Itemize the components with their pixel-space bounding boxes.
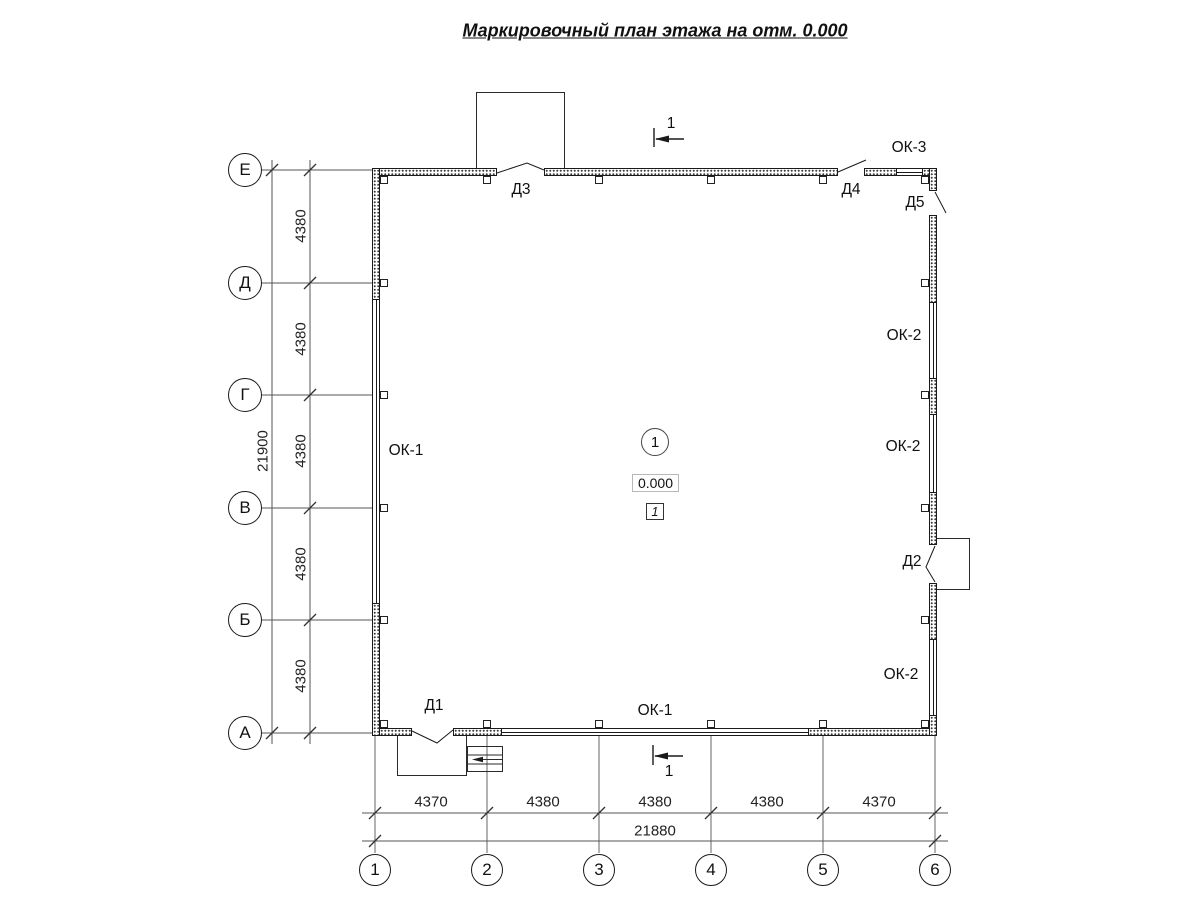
- porch-steps: [467, 746, 503, 772]
- floor-finish-mark: 1: [646, 503, 664, 520]
- porch-right: [937, 538, 970, 590]
- pilaster: [921, 279, 929, 287]
- pilaster: [707, 176, 715, 184]
- door-label-d4: Д4: [841, 181, 860, 199]
- pilaster: [380, 176, 388, 184]
- door-leaf-d5: [935, 192, 946, 213]
- wall-right-4: [929, 492, 937, 545]
- section-mark-bottom: [653, 745, 683, 765]
- pilaster: [483, 720, 491, 728]
- window-ok2-bottom-segment: [929, 640, 937, 715]
- pilaster: [921, 720, 929, 728]
- dim-col-0: 4370: [414, 794, 447, 811]
- dim-col-total: 21880: [634, 823, 676, 840]
- wall-bottom-3: [808, 728, 937, 736]
- axis-bubble: А: [228, 716, 262, 750]
- dim-row-4: 4380: [293, 659, 310, 692]
- door-leaf-d2: [926, 546, 935, 582]
- dim-col-3: 4380: [750, 794, 783, 811]
- window-label-ok2-bottom: ОК-2: [884, 666, 919, 684]
- pilaster: [380, 504, 388, 512]
- window-ok1-bottom-segment: [502, 728, 808, 736]
- wall-right-2: [929, 215, 937, 303]
- door-leaf-d4: [838, 160, 866, 172]
- window-label-ok2-top: ОК-2: [887, 327, 922, 345]
- row-axis-lines: [262, 170, 372, 733]
- window-label-ok1-bottom: ОК-1: [638, 702, 673, 720]
- dim-row-1: 4380: [293, 322, 310, 355]
- window-ok2-mid-segment: [929, 415, 937, 492]
- section-label-top: 1: [667, 115, 676, 133]
- wall-top-2: [544, 168, 838, 176]
- pilaster: [380, 720, 388, 728]
- page-title: Маркировочный план этажа на отм. 0.000: [462, 21, 847, 42]
- door-label-d5: Д5: [905, 194, 924, 212]
- window-ok2-top-segment: [929, 303, 937, 378]
- window-label-ok2-mid: ОК-2: [886, 438, 921, 456]
- wall-bottom-2: [453, 728, 502, 736]
- wall-left-2: [372, 603, 380, 736]
- wall-right-6: [929, 715, 937, 736]
- room-number-bubble: 1: [641, 428, 669, 456]
- dim-row-2: 4380: [293, 434, 310, 467]
- plan-linework: [0, 0, 1200, 900]
- axis-bubble: Г: [228, 378, 262, 412]
- axis-bubble: 5: [807, 854, 839, 886]
- pilaster: [921, 176, 929, 184]
- axis-bubble: Д: [228, 266, 262, 300]
- dim-row-3: 4380: [293, 547, 310, 580]
- pilaster: [595, 176, 603, 184]
- axis-bubble: 4: [695, 854, 727, 886]
- dim-col-4: 4370: [862, 794, 895, 811]
- axis-bubble: 2: [471, 854, 503, 886]
- wall-right-1: [929, 168, 937, 191]
- window-ok3-segment: [897, 168, 922, 176]
- section-label-bottom: 1: [665, 763, 674, 781]
- pilaster: [921, 504, 929, 512]
- door-label-d3: Д3: [511, 181, 530, 199]
- tick-marks: [266, 164, 941, 847]
- pilaster: [921, 616, 929, 624]
- pilaster: [819, 176, 827, 184]
- axis-bubble: 3: [583, 854, 615, 886]
- wall-top-1: [372, 168, 497, 176]
- elevation-mark: 0.000: [632, 474, 679, 492]
- dim-col-2: 4380: [638, 794, 671, 811]
- pilaster: [921, 391, 929, 399]
- window-label-ok1-left: ОК-1: [389, 442, 424, 460]
- pilaster: [819, 720, 827, 728]
- dim-row-0: 4380: [293, 209, 310, 242]
- pilaster: [595, 720, 603, 728]
- wall-right-3: [929, 378, 937, 415]
- axis-bubble: 6: [919, 854, 951, 886]
- pilaster: [380, 279, 388, 287]
- window-label-ok3: ОК-3: [892, 139, 927, 157]
- window-ok1-left-segment: [372, 300, 380, 603]
- pilaster: [380, 616, 388, 624]
- axis-bubble: В: [228, 491, 262, 525]
- floor-plan-canvas: Маркировочный план этажа на отм. 0.000: [0, 0, 1200, 900]
- wall-right-5: [929, 583, 937, 640]
- pilaster: [380, 391, 388, 399]
- axis-bubble: 1: [359, 854, 391, 886]
- wall-left-1: [372, 168, 380, 300]
- pilaster: [707, 720, 715, 728]
- dim-col-1: 4380: [526, 794, 559, 811]
- wall-top-3: [864, 168, 897, 176]
- axis-bubble: Б: [228, 603, 262, 637]
- room-number: 1: [651, 434, 659, 451]
- pilaster: [483, 176, 491, 184]
- porch-top: [476, 92, 565, 168]
- porch-bottom-left: [397, 736, 467, 776]
- axis-bubble: Е: [228, 153, 262, 187]
- dim-row-total: 21900: [255, 430, 272, 472]
- door-label-d2: Д2: [902, 553, 921, 571]
- door-label-d1: Д1: [424, 697, 443, 715]
